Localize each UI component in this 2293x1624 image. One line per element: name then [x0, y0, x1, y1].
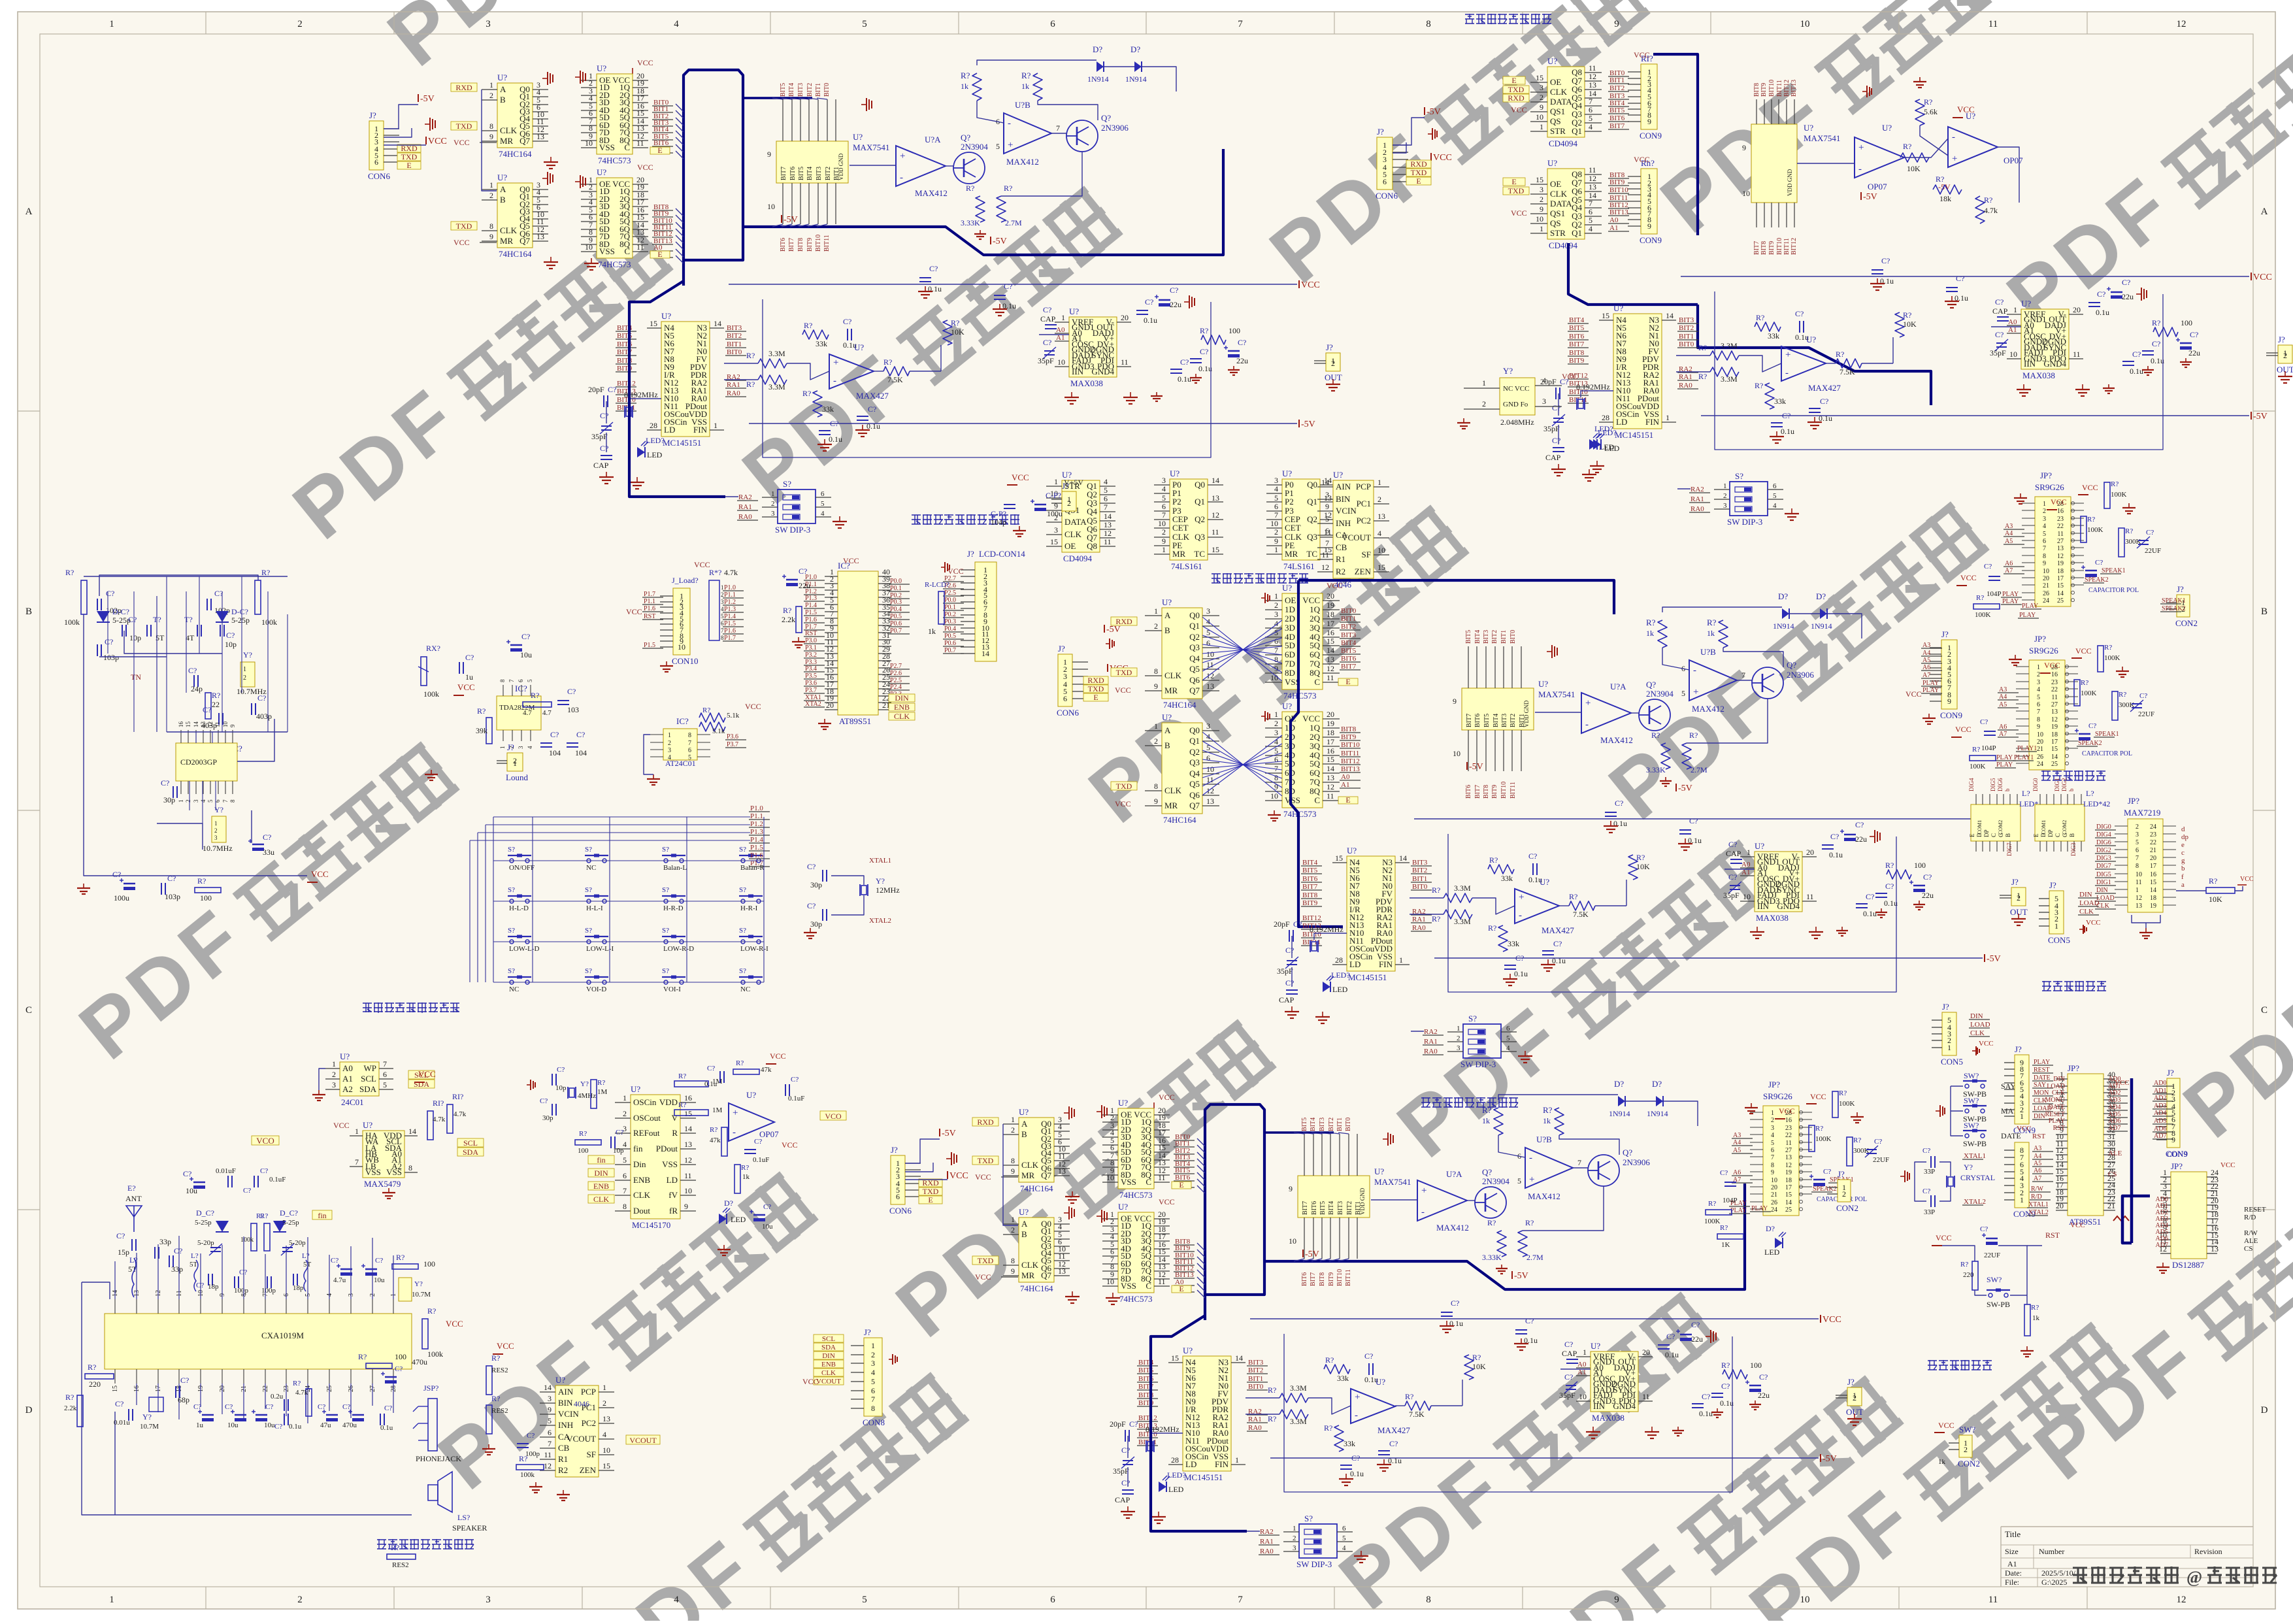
svg-text:8: 8	[2136, 863, 2139, 870]
svg-text:P3.5: P3.5	[805, 672, 817, 680]
svg-text:ZEN: ZEN	[1355, 567, 1372, 576]
svg-text:12: 12	[1212, 510, 1219, 520]
svg-text:8Q: 8Q	[1310, 668, 1321, 678]
svg-text:DIG4: DIG4	[2096, 831, 2111, 838]
svg-text:6: 6	[871, 1386, 875, 1395]
svg-text:C: C	[624, 246, 630, 256]
svg-text:MAX038: MAX038	[1070, 378, 1103, 388]
svg-text:C?: C?	[521, 632, 530, 641]
svg-text:1: 1	[2054, 921, 2058, 931]
svg-text:C?: C?	[1553, 939, 1562, 948]
svg-text:27: 27	[2057, 538, 2064, 545]
svg-text:8Q: 8Q	[1310, 786, 1321, 796]
svg-text:30p: 30p	[163, 795, 175, 804]
svg-text:P0.4: P0.4	[890, 606, 902, 613]
svg-text:R: R	[672, 1128, 678, 1138]
svg-text:BIT6: BIT6	[1609, 114, 1625, 122]
svg-text:5-25p: 5-25p	[282, 1219, 299, 1227]
svg-text:R?: R?	[1268, 1414, 1276, 1423]
svg-text:E: E	[1511, 177, 1516, 186]
svg-text:BIT5: BIT5	[1341, 647, 1357, 655]
svg-text:SCL: SCL	[463, 1138, 478, 1148]
svg-text:R?: R?	[966, 184, 974, 193]
svg-text:1N914: 1N914	[1647, 1109, 1668, 1118]
svg-text:STR: STR	[1550, 228, 1566, 238]
svg-text:C?: C?	[1180, 357, 1189, 367]
svg-text:AD4: AD4	[2108, 1104, 2120, 1111]
svg-text:BIN: BIN	[1336, 494, 1351, 504]
svg-text:74HC573: 74HC573	[1283, 809, 1317, 819]
svg-text:AD2: AD2	[2154, 1095, 2166, 1102]
svg-text:U?: U?	[853, 132, 863, 142]
svg-text:10: 10	[684, 1186, 692, 1195]
svg-text:TXD: TXD	[401, 152, 418, 161]
svg-text:+: +	[1952, 154, 1957, 164]
svg-text:DS12887: DS12887	[2172, 1260, 2205, 1270]
svg-text:8D: 8D	[1285, 668, 1295, 678]
svg-text:15: 15	[650, 319, 657, 328]
svg-text:1: 1	[1723, 482, 1727, 490]
svg-text:100K: 100K	[1815, 1135, 1832, 1143]
svg-text:AD6: AD6	[2108, 1118, 2120, 1125]
svg-text:R?: R?	[597, 1079, 605, 1087]
svg-text:CAP: CAP	[1115, 1495, 1130, 1504]
svg-text:R?: R?	[260, 1212, 268, 1220]
svg-text:C?: C?	[540, 1097, 548, 1105]
svg-text:11: 11	[1988, 19, 1998, 29]
svg-text:19: 19	[1327, 601, 1334, 610]
svg-text:10: 10	[1158, 519, 1166, 528]
svg-text:PLAY: PLAY	[2022, 603, 2038, 610]
svg-text:74HC164: 74HC164	[499, 249, 532, 259]
svg-text:1: 1	[489, 180, 493, 190]
svg-text:AT89S51: AT89S51	[839, 716, 871, 726]
svg-text:BIT6: BIT6	[789, 167, 797, 180]
svg-text:SW DIP-3: SW DIP-3	[1296, 1559, 1332, 1569]
svg-text:Date:: Date:	[2005, 1568, 2022, 1578]
svg-text:13: 13	[1058, 1267, 1066, 1276]
svg-text:A2: A2	[342, 1084, 353, 1094]
svg-text:RST: RST	[805, 630, 817, 637]
svg-text:CON10: CON10	[672, 656, 698, 666]
svg-text:U?: U?	[497, 173, 507, 182]
svg-text:R?: R?	[2119, 691, 2126, 699]
svg-text:Q6: Q6	[1189, 790, 1200, 800]
svg-text:S?: S?	[508, 846, 515, 853]
svg-text:BIT9: BIT9	[1760, 83, 1768, 97]
svg-text:2: 2	[1540, 93, 1543, 102]
svg-text:6Q: 6Q	[1310, 650, 1321, 659]
svg-text:0.1u: 0.1u	[289, 1423, 302, 1431]
svg-text:1: 1	[2043, 501, 2046, 508]
svg-text:C?: C?	[1043, 338, 1051, 347]
svg-text:A4: A4	[1999, 693, 2007, 701]
svg-text:20: 20	[2043, 575, 2049, 582]
svg-text:4.7u: 4.7u	[333, 1276, 346, 1284]
svg-text:1: 1	[1771, 1110, 1774, 1117]
svg-text:CAP: CAP	[1040, 314, 1056, 323]
svg-text:VCC: VCC	[2044, 661, 2060, 670]
svg-text:PLAY: PLAY	[1922, 680, 1939, 687]
svg-text:L?: L?	[191, 1252, 199, 1260]
svg-text:G:\2025: G:\2025	[2041, 1578, 2067, 1587]
svg-text:100K: 100K	[1839, 1100, 1855, 1108]
svg-text:20: 20	[1642, 1348, 1650, 1357]
svg-text:2: 2	[1853, 1393, 1856, 1402]
svg-text:BIT2: BIT2	[825, 167, 832, 180]
svg-text:CD4094: CD4094	[1549, 240, 1578, 250]
svg-text:R-LCD?: R-LCD?	[925, 581, 949, 589]
svg-text:BIT0: BIT0	[1345, 1118, 1352, 1131]
svg-text:VCC: VCC	[1979, 1040, 1994, 1048]
svg-text:-5V: -5V	[1678, 784, 1692, 793]
svg-text:VCIN: VCIN	[1336, 506, 1357, 516]
svg-text:H-L-I: H-L-I	[586, 904, 603, 912]
svg-text:JP?: JP?	[2171, 1161, 2183, 1171]
svg-text:R?: R?	[883, 357, 892, 367]
svg-text:ALE: ALE	[2108, 1150, 2122, 1157]
svg-text:-: -	[1585, 720, 1589, 730]
svg-text:BIT10: BIT10	[1768, 80, 1775, 97]
svg-text:CAP: CAP	[1279, 995, 1295, 1004]
svg-text:1N914: 1N914	[1609, 1109, 1630, 1118]
svg-text:BIT7: BIT7	[1753, 241, 1760, 255]
svg-text:11: 11	[636, 139, 644, 148]
svg-text:13: 13	[684, 1140, 692, 1149]
svg-text:CLK: CLK	[1064, 529, 1082, 539]
svg-text:2025/5/10/: 2025/5/10/	[2041, 1568, 2076, 1578]
svg-text:1: 1	[2020, 1195, 2024, 1204]
svg-text:BIT2: BIT2	[1341, 623, 1356, 631]
svg-text:DIG2: DIG2	[2096, 847, 2111, 854]
svg-text:QS: QS	[1550, 116, 1561, 126]
svg-text:C: C	[2054, 833, 2061, 837]
svg-text:C?: C?	[161, 778, 169, 787]
svg-text:MC145151: MC145151	[1348, 972, 1387, 982]
svg-text:9: 9	[1325, 502, 1329, 511]
svg-text:4: 4	[527, 746, 533, 749]
svg-text:9: 9	[1647, 117, 1651, 126]
svg-text:U?B: U?B	[1015, 100, 1031, 110]
svg-text:E: E	[1179, 1284, 1183, 1293]
svg-text:BIT4: BIT4	[1474, 630, 1481, 644]
svg-text:DIG5: DIG5	[1990, 778, 1996, 791]
svg-text:16: 16	[1327, 746, 1334, 755]
svg-text:VCC: VCC	[1562, 372, 1578, 381]
svg-text:10.7M: 10.7M	[140, 1423, 159, 1431]
svg-text:U?: U?	[1613, 303, 1623, 313]
svg-text:P3.7: P3.7	[805, 687, 817, 694]
svg-text:2: 2	[1274, 601, 1278, 610]
svg-text:CLK: CLK	[2079, 908, 2094, 916]
svg-text:74HC164: 74HC164	[1020, 1284, 1053, 1293]
svg-text:TXD: TXD	[1116, 782, 1132, 791]
svg-text:10p: 10p	[613, 1147, 624, 1155]
svg-text:BIT2: BIT2	[1328, 1118, 1335, 1131]
svg-text:11: 11	[1806, 892, 1814, 901]
svg-text:BIT4: BIT4	[1328, 1201, 1335, 1215]
svg-text:2: 2	[1274, 719, 1278, 728]
svg-text:11: 11	[684, 1171, 692, 1180]
svg-text:2: 2	[1842, 1189, 1846, 1199]
svg-text:CLK: CLK	[1021, 1160, 1039, 1170]
svg-text:C?: C?	[557, 1066, 565, 1074]
svg-text:VCC: VCC	[1955, 725, 1971, 734]
svg-text:JP?: JP?	[2040, 471, 2052, 480]
svg-text:JP?: JP?	[2034, 634, 2046, 644]
svg-text:BIT0: BIT0	[823, 83, 831, 97]
svg-text:U?: U?	[631, 1084, 640, 1094]
svg-text:4: 4	[1773, 502, 1777, 510]
svg-text:20pF: 20pF	[1274, 920, 1290, 929]
svg-text:7: 7	[1325, 539, 1329, 548]
svg-text:S?: S?	[508, 967, 515, 975]
svg-text:C?: C?	[1043, 305, 1051, 314]
svg-text:7: 7	[1589, 199, 1592, 208]
svg-text:R?: R?	[1525, 1218, 1534, 1227]
svg-text:7Q: 7Q	[1310, 659, 1321, 669]
svg-text:15: 15	[112, 1385, 119, 1392]
svg-text:U?: U?	[1540, 877, 1549, 887]
svg-text:3.3M: 3.3M	[768, 382, 785, 391]
svg-text:@: @	[2186, 1568, 2202, 1587]
svg-text:6: 6	[518, 679, 524, 682]
svg-text:2: 2	[214, 827, 218, 834]
svg-text:0.01u: 0.01u	[114, 1419, 130, 1427]
svg-text:10: 10	[678, 642, 685, 652]
svg-text:BIT3: BIT3	[1501, 714, 1508, 727]
svg-text:A1: A1	[1577, 1368, 1586, 1376]
svg-text:11: 11	[1121, 357, 1129, 367]
svg-text:3: 3	[721, 599, 724, 605]
svg-text:C?: C?	[1720, 1169, 1728, 1177]
svg-text:XTAL2: XTAL2	[1964, 1198, 1986, 1206]
svg-text:C?: C?	[1564, 1340, 1573, 1349]
svg-text:J?: J?	[1377, 127, 1384, 137]
svg-text:C?: C?	[1170, 286, 1178, 295]
svg-text:BIT7: BIT7	[1569, 340, 1585, 348]
svg-text:13: 13	[1589, 182, 1596, 191]
svg-text:SW-PB: SW-PB	[1987, 1300, 2010, 1309]
svg-text:Q2: Q2	[1189, 747, 1200, 757]
svg-text:XTAL2: XTAL2	[2028, 1209, 2049, 1216]
svg-text:15: 15	[1327, 637, 1334, 646]
svg-text:R?: R?	[678, 1072, 686, 1080]
svg-text:RXD: RXD	[1115, 617, 1132, 626]
svg-text:-5V: -5V	[2253, 412, 2268, 422]
svg-text:100K: 100K	[2087, 526, 2103, 534]
svg-text:COM1: COM1	[2041, 820, 2047, 835]
svg-text:VCC: VCC	[843, 556, 859, 565]
svg-text:P0.1: P0.1	[944, 604, 956, 611]
svg-text:CON9: CON9	[1940, 710, 1962, 720]
svg-text:1: 1	[1482, 378, 1486, 388]
svg-text:SPEAK2: SPEAK2	[2162, 605, 2186, 612]
svg-text:VCC: VCC	[1159, 1197, 1175, 1206]
svg-text:C?: C?	[1691, 1320, 1700, 1329]
svg-text:C: C	[624, 142, 630, 152]
svg-text:C?: C?	[1121, 1446, 1130, 1455]
svg-text:14: 14	[2150, 887, 2156, 894]
svg-text:1Q: 1Q	[1310, 723, 1321, 733]
svg-text:74HC573: 74HC573	[1119, 1294, 1153, 1304]
svg-text:5-25p: 5-25p	[231, 616, 250, 625]
svg-text:8.192MHz: 8.192MHz	[1310, 925, 1344, 934]
svg-text:NC: NC	[509, 986, 519, 993]
svg-text:P1.7: P1.7	[724, 635, 736, 642]
svg-text:2: 2	[489, 91, 493, 100]
svg-text:5: 5	[862, 19, 867, 29]
svg-text:C?: C?	[1885, 882, 1894, 891]
svg-text:VSS: VSS	[662, 1159, 678, 1169]
svg-text:10: 10	[1800, 19, 1810, 29]
svg-text:R?: R?	[1708, 1200, 1716, 1208]
svg-text:RA0: RA0	[1691, 505, 1704, 513]
svg-text:MAX412: MAX412	[1006, 157, 1039, 167]
svg-text:35pF: 35pF	[1113, 1467, 1129, 1476]
svg-text:0.1u: 0.1u	[1144, 316, 1157, 325]
svg-text:6Q: 6Q	[1310, 768, 1321, 778]
svg-text:QS1: QS1	[1550, 208, 1565, 218]
svg-text:H-R-D: H-R-D	[663, 904, 684, 912]
svg-text:5: 5	[688, 754, 691, 761]
svg-text:VCC: VCC	[1957, 105, 1975, 114]
svg-text:VCC: VCC	[975, 1272, 991, 1282]
svg-text:12: 12	[2057, 553, 2064, 560]
svg-text:BIT3: BIT3	[1483, 630, 1490, 644]
svg-text:1: 1	[1666, 413, 1670, 422]
svg-text:1k: 1k	[1543, 1116, 1551, 1125]
svg-text:E: E	[1093, 693, 1098, 702]
svg-text:Q6: Q6	[1189, 675, 1200, 685]
svg-text:C?: C?	[274, 1423, 282, 1431]
svg-text:R?: R?	[579, 1130, 587, 1138]
svg-text:S?: S?	[508, 886, 515, 894]
svg-text:E?: E?	[127, 1184, 136, 1193]
svg-text:C?: C?	[1728, 872, 1737, 882]
svg-text:0.1u: 0.1u	[2096, 308, 2109, 317]
svg-text:BIT5: BIT5	[1319, 1201, 1327, 1215]
svg-text:ANT: ANT	[125, 1194, 142, 1203]
svg-text:CAP: CAP	[1726, 849, 1741, 858]
svg-text:A: A	[2261, 207, 2268, 217]
svg-text:DIG1: DIG1	[2054, 778, 2060, 792]
svg-text:10: 10	[1771, 1177, 1777, 1184]
svg-text:R?: R?	[1984, 195, 1992, 205]
svg-text:BIT8: BIT8	[1569, 349, 1585, 357]
svg-text:BIT9: BIT9	[1491, 785, 1498, 799]
svg-text:LOW-L-D: LOW-L-D	[509, 945, 539, 953]
svg-text:15: 15	[602, 1461, 610, 1470]
svg-text:100: 100	[2181, 318, 2192, 327]
svg-text:VCC: VCC	[1327, 581, 1343, 590]
svg-text:9: 9	[229, 724, 236, 727]
svg-text:-: -	[1952, 132, 1955, 142]
svg-text:CAP: CAP	[1992, 307, 2008, 316]
svg-text:GND4: GND4	[1091, 367, 1114, 376]
svg-text:12: 12	[207, 721, 214, 727]
svg-text:2N3904: 2N3904	[1482, 1176, 1509, 1186]
svg-text:11: 11	[636, 242, 644, 252]
svg-text:AD4: AD4	[2154, 1110, 2166, 1117]
svg-text:VCC: VCC	[626, 607, 642, 616]
svg-text:7: 7	[2043, 545, 2046, 552]
svg-text:S?: S?	[1304, 1514, 1313, 1523]
svg-text:DIN: DIN	[2096, 887, 2108, 894]
svg-text:R?: R?	[1853, 1136, 1861, 1144]
svg-text:13: 13	[1212, 493, 1219, 503]
svg-text:LD: LD	[1349, 959, 1361, 969]
svg-text:SR9G26: SR9G26	[2035, 482, 2064, 492]
svg-text:RA0: RA0	[738, 513, 752, 521]
svg-text:LS?: LS?	[457, 1513, 470, 1522]
svg-text:E: E	[1416, 176, 1421, 186]
svg-text:C?: C?	[1528, 852, 1537, 861]
svg-text:U?: U?	[1591, 1341, 1600, 1351]
svg-text:BIT1: BIT1	[1412, 875, 1427, 883]
svg-text:1: 1	[1293, 1525, 1296, 1533]
svg-text:22UF: 22UF	[2145, 547, 2161, 555]
svg-text:15: 15	[1536, 175, 1543, 184]
svg-text:CON2: CON2	[1836, 1203, 1858, 1213]
svg-text:5: 5	[1274, 493, 1278, 503]
svg-text:18: 18	[2051, 731, 2058, 738]
svg-text:33k: 33k	[816, 339, 827, 348]
svg-text:MAX427: MAX427	[1542, 925, 1574, 935]
svg-text:VCC: VCC	[457, 682, 475, 692]
svg-text:C?: C?	[318, 1403, 325, 1411]
svg-text:BIT8: BIT8	[1302, 891, 1318, 899]
svg-text:ENB: ENB	[894, 703, 910, 712]
svg-text:VCC: VCC	[949, 1171, 968, 1181]
svg-text:U?B: U?B	[1536, 1135, 1552, 1144]
svg-text:BIT8: BIT8	[797, 238, 804, 252]
svg-text:VCC: VCC	[1936, 1233, 1952, 1242]
svg-text:+: +	[1858, 142, 1864, 153]
svg-text:6: 6	[1589, 207, 1592, 216]
svg-text:74HC164: 74HC164	[1020, 1184, 1053, 1193]
svg-text:6: 6	[1063, 694, 1067, 703]
svg-text:R?: R?	[736, 1059, 744, 1067]
svg-text:A5: A5	[1733, 1147, 1741, 1154]
svg-text:3.3M: 3.3M	[1721, 341, 1738, 350]
svg-text:VCC: VCC	[782, 1140, 798, 1150]
svg-text:14: 14	[1666, 311, 1674, 320]
svg-text:6: 6	[2043, 538, 2046, 545]
svg-text:CET: CET	[1285, 523, 1301, 533]
svg-text:104P: 104P	[1981, 744, 1996, 752]
svg-text:220: 220	[1963, 1271, 1974, 1279]
svg-text:R?: R?	[1976, 594, 1984, 602]
svg-text:VCC: VCC	[454, 238, 470, 247]
svg-text:BIT8: BIT8	[1760, 241, 1768, 255]
svg-text:VCC: VCC	[1511, 105, 1527, 114]
svg-text:U?: U?	[1170, 469, 1179, 478]
svg-text:RES2: RES2	[491, 1367, 508, 1374]
svg-text:C?: C?	[527, 1432, 535, 1440]
svg-text:DIG1: DIG1	[2096, 879, 2111, 886]
svg-text:BIT9: BIT9	[1609, 178, 1625, 186]
svg-text:A1: A1	[342, 1074, 353, 1084]
svg-text:C?: C?	[1129, 1419, 1138, 1429]
svg-text:22u: 22u	[1758, 1391, 1770, 1400]
svg-text:PLAY: PLAY	[2049, 1118, 2065, 1125]
svg-text:30p: 30p	[810, 920, 822, 929]
svg-text:1: 1	[714, 421, 718, 430]
svg-text:C?: C?	[214, 589, 223, 598]
svg-text:S?: S?	[508, 927, 515, 935]
svg-text:0.1u: 0.1u	[1198, 364, 1212, 373]
